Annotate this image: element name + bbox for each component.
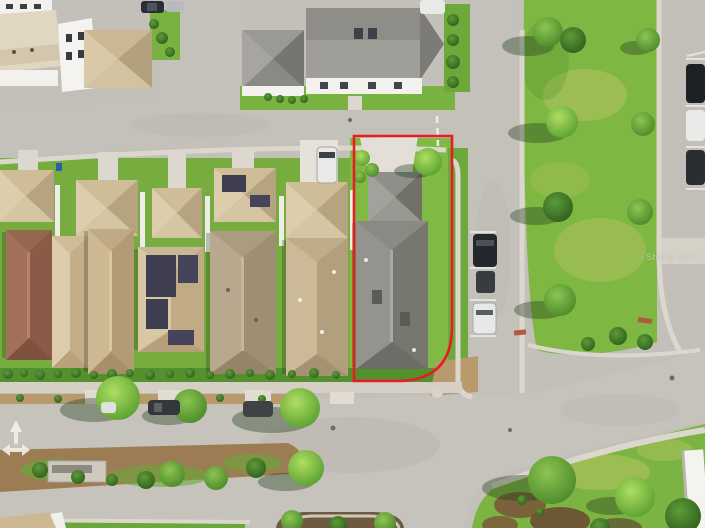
- main-house-row: [2, 221, 428, 376]
- cars-right-street: [686, 64, 705, 185]
- solar-array: [146, 255, 176, 297]
- house-top-center: [242, 8, 444, 96]
- house-tan-roof-2: [88, 229, 134, 374]
- van-on-driveway: [317, 147, 337, 183]
- car-white-top-center: [420, 0, 445, 14]
- solar-panels: [222, 175, 246, 192]
- trash-bin: [56, 163, 62, 171]
- house-tan-roof-3: [286, 238, 348, 376]
- house-brown-roof: [6, 230, 52, 360]
- aerial-photo: Stellar MLS: [0, 0, 705, 528]
- car-dark-top: [141, 1, 164, 13]
- house-speckled-roof: [210, 231, 276, 374]
- cars-parking-bay: [473, 234, 497, 334]
- aerial-scene: [0, 0, 705, 528]
- house-top-left: [0, 0, 96, 92]
- house-subject-gray-roof: [356, 221, 428, 369]
- alley-path: [0, 382, 462, 393]
- house-tan-roof-1: [52, 236, 88, 368]
- entry-monument-island: [276, 510, 404, 528]
- car-silver-top: [166, 1, 184, 12]
- house-solar-roof: [138, 247, 204, 352]
- house-top-left-garage-roof: [84, 30, 152, 88]
